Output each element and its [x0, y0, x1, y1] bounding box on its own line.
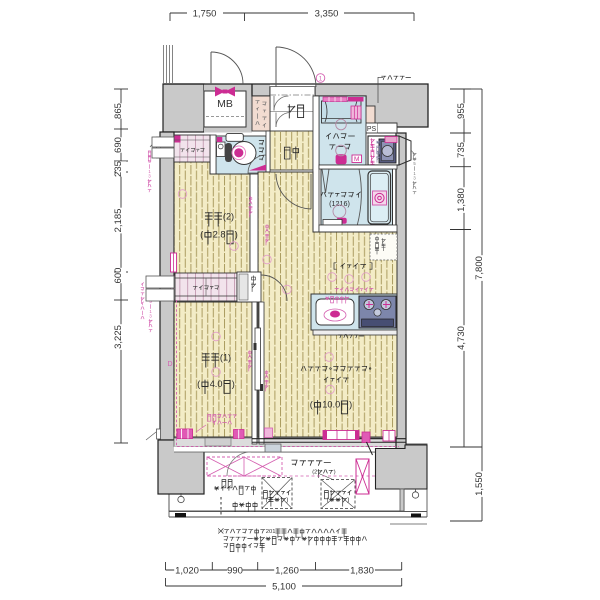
svg-text:1,380: 1,380 [456, 188, 467, 212]
svg-text:235: 235 [113, 161, 124, 177]
svg-text:10.0: 10.0 [322, 399, 340, 409]
svg-text:(1216): (1216) [329, 199, 350, 208]
svg-text:600: 600 [113, 268, 124, 284]
svg-text:(: ( [310, 399, 313, 409]
svg-text:990: 990 [227, 566, 243, 577]
svg-text:D: D [167, 361, 172, 368]
svg-text:4.0: 4.0 [210, 379, 223, 389]
svg-text:735: 735 [456, 142, 467, 158]
svg-text:3,225: 3,225 [113, 325, 124, 349]
svg-text:1: 1 [319, 76, 323, 83]
svg-text:5,100: 5,100 [272, 582, 296, 593]
svg-text:955: 955 [456, 103, 467, 119]
svg-text:(1): (1) [220, 352, 231, 362]
svg-text:): ) [347, 498, 349, 504]
svg-text:M: M [354, 156, 359, 163]
svg-text:690: 690 [113, 137, 124, 153]
svg-text:PS: PS [367, 126, 377, 133]
svg-text:201: 201 [266, 529, 276, 535]
svg-text:7,800: 7,800 [474, 256, 485, 280]
svg-text:MB: MB [217, 98, 233, 110]
svg-text:1,830: 1,830 [350, 566, 374, 577]
svg-text:(: ( [197, 379, 200, 389]
svg-text:2,185: 2,185 [113, 209, 124, 233]
svg-text:4,730: 4,730 [456, 326, 467, 350]
svg-text:1,750: 1,750 [193, 9, 217, 20]
svg-text:1,260: 1,260 [275, 566, 299, 577]
svg-text:(: ( [266, 498, 268, 504]
svg-text:865: 865 [113, 103, 124, 119]
svg-text:(: ( [200, 229, 203, 239]
svg-text:3,350: 3,350 [315, 9, 339, 20]
svg-text:): ) [349, 399, 352, 409]
svg-text:1,020: 1,020 [175, 566, 199, 577]
svg-text:2.8: 2.8 [213, 229, 226, 239]
svg-text:): ) [286, 498, 288, 504]
svg-text:): ) [235, 229, 238, 239]
svg-text:(2: (2 [312, 470, 317, 476]
svg-text:(2): (2) [223, 211, 234, 221]
svg-text:(: ( [327, 498, 329, 504]
svg-text:): ) [334, 470, 336, 476]
svg-text:1,550: 1,550 [474, 472, 485, 496]
svg-text:): ) [232, 379, 235, 389]
